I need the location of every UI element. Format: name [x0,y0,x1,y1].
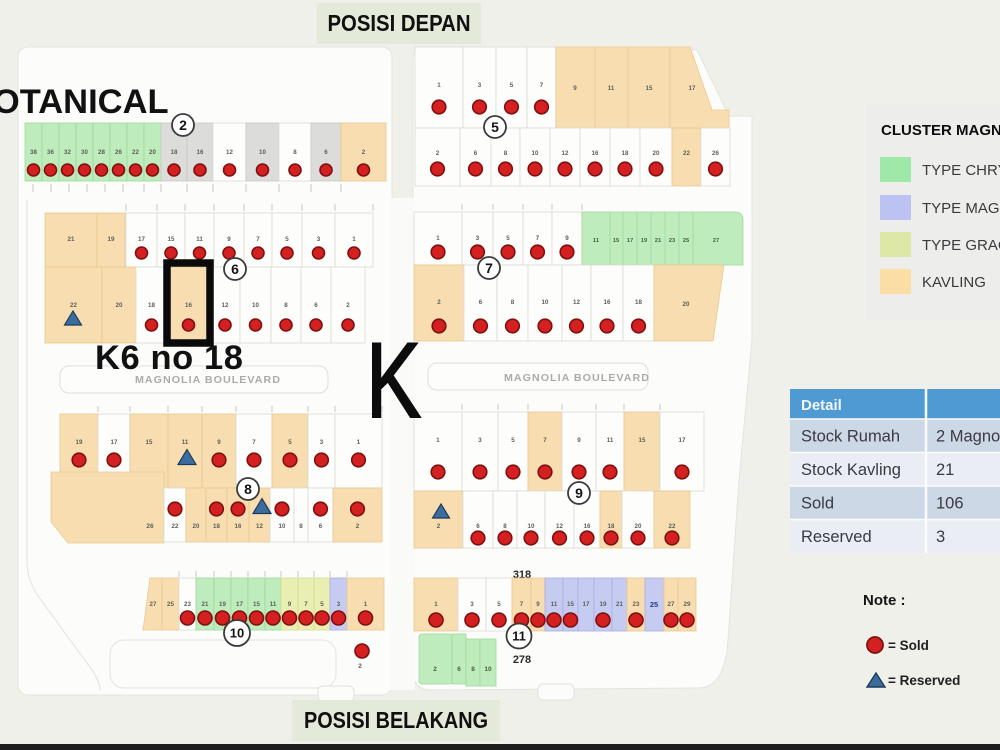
svg-text:15: 15 [567,601,574,608]
svg-text:17: 17 [583,601,590,608]
svg-text:17: 17 [627,238,633,244]
svg-text:21: 21 [68,236,75,243]
svg-text:18: 18 [171,149,178,156]
svg-text:3: 3 [478,82,482,89]
svg-text:27: 27 [150,601,157,608]
svg-text:9: 9 [217,439,221,446]
svg-text:32: 32 [64,149,71,156]
svg-text:106: 106 [936,495,964,513]
svg-text:6: 6 [231,261,239,277]
svg-text:7: 7 [252,439,256,446]
svg-text:28: 28 [98,149,105,156]
svg-text:8: 8 [511,299,515,306]
svg-text:POSISI DEPAN: POSISI DEPAN [328,10,471,36]
svg-text:36: 36 [47,149,54,156]
svg-text:5: 5 [510,82,514,89]
svg-text:10: 10 [532,150,539,157]
svg-text:15: 15 [646,85,653,92]
svg-text:3: 3 [476,235,480,242]
svg-text:12: 12 [556,523,563,530]
svg-text:19: 19 [219,601,226,608]
svg-text:11: 11 [196,236,203,243]
svg-text:17: 17 [236,601,243,608]
svg-text:5: 5 [491,119,499,135]
svg-text:5: 5 [506,235,510,242]
svg-text:3: 3 [320,439,324,446]
svg-text:10: 10 [252,302,259,309]
svg-text:K6 no 18: K6 no 18 [95,339,244,377]
svg-text:1: 1 [364,601,368,608]
svg-text:9: 9 [573,85,577,92]
svg-text:2: 2 [346,302,350,309]
svg-text:Stock Kavling: Stock Kavling [801,461,901,479]
svg-text:22: 22 [132,149,139,156]
svg-text:27: 27 [713,238,719,244]
svg-text:6: 6 [479,299,483,306]
svg-text:Note :: Note : [863,592,906,609]
svg-text:16: 16 [197,149,204,156]
svg-text:21: 21 [202,601,209,608]
svg-text:TYPE GRACIA: TYPE GRACIA [922,237,1000,254]
svg-text:17: 17 [138,236,145,243]
svg-text:2: 2 [362,149,366,156]
svg-text:21: 21 [655,238,662,244]
svg-text:20: 20 [193,523,200,530]
svg-text:= Reserved: = Reserved [888,673,960,688]
svg-text:10: 10 [542,299,549,306]
svg-text:15: 15 [253,601,260,608]
svg-text:Stock Rumah: Stock Rumah [801,428,900,446]
svg-text:18: 18 [213,523,220,530]
svg-text:MAGNOLIA BOULEVARD: MAGNOLIA BOULEVARD [504,372,650,384]
svg-text:8: 8 [471,666,475,673]
svg-text:7: 7 [256,236,260,243]
svg-text:POSISI BELAKANG: POSISI BELAKANG [304,707,488,733]
svg-text:12: 12 [562,150,569,157]
svg-text:2: 2 [437,299,441,306]
svg-text:7: 7 [540,82,544,89]
svg-text:20: 20 [149,149,156,156]
svg-text:6: 6 [476,523,480,530]
svg-text:10: 10 [279,523,286,530]
svg-text:30: 30 [81,149,88,156]
svg-text:1: 1 [437,82,441,89]
svg-text:29: 29 [684,601,691,608]
svg-text:5: 5 [288,439,292,446]
svg-text:3: 3 [470,601,474,608]
svg-text:3: 3 [936,528,945,546]
svg-text:38: 38 [30,149,37,156]
svg-text:7: 7 [536,235,540,242]
svg-text:22: 22 [683,150,690,157]
svg-text:6: 6 [324,149,328,156]
svg-text:10: 10 [528,523,535,530]
svg-text:2: 2 [179,117,187,133]
svg-text:7: 7 [304,601,308,608]
svg-text:2: 2 [358,663,362,670]
svg-text:17: 17 [689,85,696,92]
svg-text:278: 278 [513,654,531,666]
svg-text:8: 8 [244,481,252,497]
svg-text:7: 7 [485,260,493,276]
svg-text:12: 12 [573,299,580,306]
svg-text:20: 20 [683,301,690,308]
svg-text:21: 21 [936,461,954,479]
svg-text:Reserved: Reserved [801,528,872,546]
svg-text:11: 11 [607,437,614,444]
svg-text:20: 20 [116,302,123,309]
svg-text:8: 8 [293,149,297,156]
svg-text:BOTANICAL: BOTANICAL [0,83,169,121]
svg-text:25: 25 [683,238,690,244]
svg-text:3: 3 [317,236,321,243]
svg-text:16: 16 [584,523,591,530]
svg-text:5: 5 [497,601,501,608]
svg-text:5: 5 [511,437,515,444]
svg-text:K: K [366,320,421,440]
svg-text:6: 6 [457,666,461,673]
svg-text:16: 16 [604,299,611,306]
svg-text:2 Magnolia: 2 Magnolia [936,428,1000,446]
svg-text:9: 9 [577,437,581,444]
svg-text:8: 8 [503,523,507,530]
svg-text:Sold: Sold [801,495,834,513]
svg-text:8: 8 [284,302,288,309]
svg-text:11: 11 [593,238,600,244]
svg-text:23: 23 [669,238,676,244]
svg-text:18: 18 [635,299,642,306]
svg-text:9: 9 [288,601,292,608]
svg-text:1: 1 [357,439,361,446]
svg-text:17: 17 [111,439,118,446]
svg-text:6: 6 [314,302,318,309]
svg-text:3: 3 [337,601,341,608]
svg-text:15: 15 [639,437,646,444]
svg-text:2: 2 [356,523,360,530]
svg-text:19: 19 [76,439,83,446]
svg-text:Detail: Detail [801,397,842,414]
svg-text:26: 26 [146,523,154,530]
svg-text:27: 27 [668,601,675,608]
svg-text:19: 19 [600,601,607,608]
svg-text:10: 10 [484,666,492,673]
svg-text:5: 5 [320,601,324,608]
svg-text:TYPE CHRYSANT: TYPE CHRYSANT [922,162,1000,179]
svg-text:6: 6 [474,150,478,157]
svg-text:11: 11 [512,629,526,644]
svg-text:KAVLING: KAVLING [922,274,986,291]
svg-text:11: 11 [182,439,189,446]
svg-text:1: 1 [436,235,440,242]
svg-text:18: 18 [622,150,629,157]
svg-text:22: 22 [172,523,179,530]
svg-text:15: 15 [146,439,153,446]
svg-text:26: 26 [712,150,719,157]
svg-text:2: 2 [437,523,441,530]
svg-text:26: 26 [115,149,122,156]
svg-text:16: 16 [592,150,599,157]
svg-text:15: 15 [168,236,175,243]
svg-text:9: 9 [536,601,540,608]
svg-text:10: 10 [259,149,266,156]
svg-text:21: 21 [616,601,623,608]
svg-text:18: 18 [148,302,155,309]
svg-text:6: 6 [319,523,323,530]
svg-text:19: 19 [641,238,648,244]
svg-text:2: 2 [436,150,440,157]
svg-text:11: 11 [551,601,558,608]
svg-text:25: 25 [167,601,174,608]
svg-text:8: 8 [504,150,508,157]
svg-text:18: 18 [608,523,615,530]
svg-text:TYPE MAGNOLIA: TYPE MAGNOLIA [922,200,1000,217]
svg-text:20: 20 [635,523,642,530]
svg-text:= Sold: = Sold [888,638,929,653]
svg-text:19: 19 [108,236,115,243]
svg-text:CLUSTER MAGNOLIA: CLUSTER MAGNOLIA [881,122,1000,139]
svg-text:1: 1 [436,437,440,444]
svg-text:7: 7 [543,437,547,444]
svg-text:8: 8 [299,523,303,530]
svg-text:1: 1 [352,236,356,243]
svg-text:23: 23 [633,601,640,608]
svg-text:25: 25 [650,600,658,609]
svg-text:2: 2 [433,666,437,673]
svg-text:10: 10 [230,626,244,641]
svg-text:12: 12 [256,523,263,530]
svg-text:11: 11 [608,85,615,92]
svg-text:17: 17 [679,437,686,444]
svg-text:12: 12 [222,302,229,309]
svg-text:15: 15 [613,238,620,244]
svg-text:20: 20 [653,150,660,157]
svg-text:12: 12 [226,149,233,156]
svg-text:9: 9 [575,485,583,501]
svg-text:1: 1 [434,601,438,608]
svg-text:11: 11 [270,601,277,608]
svg-text:3: 3 [478,437,482,444]
svg-text:7: 7 [520,601,524,608]
svg-text:22: 22 [70,302,77,309]
svg-text:9: 9 [565,235,569,242]
svg-text:16: 16 [185,302,192,309]
svg-text:22: 22 [669,523,676,530]
svg-text:9: 9 [227,236,231,243]
svg-text:16: 16 [235,523,242,530]
svg-text:23: 23 [184,601,191,608]
svg-text:5: 5 [285,236,289,243]
